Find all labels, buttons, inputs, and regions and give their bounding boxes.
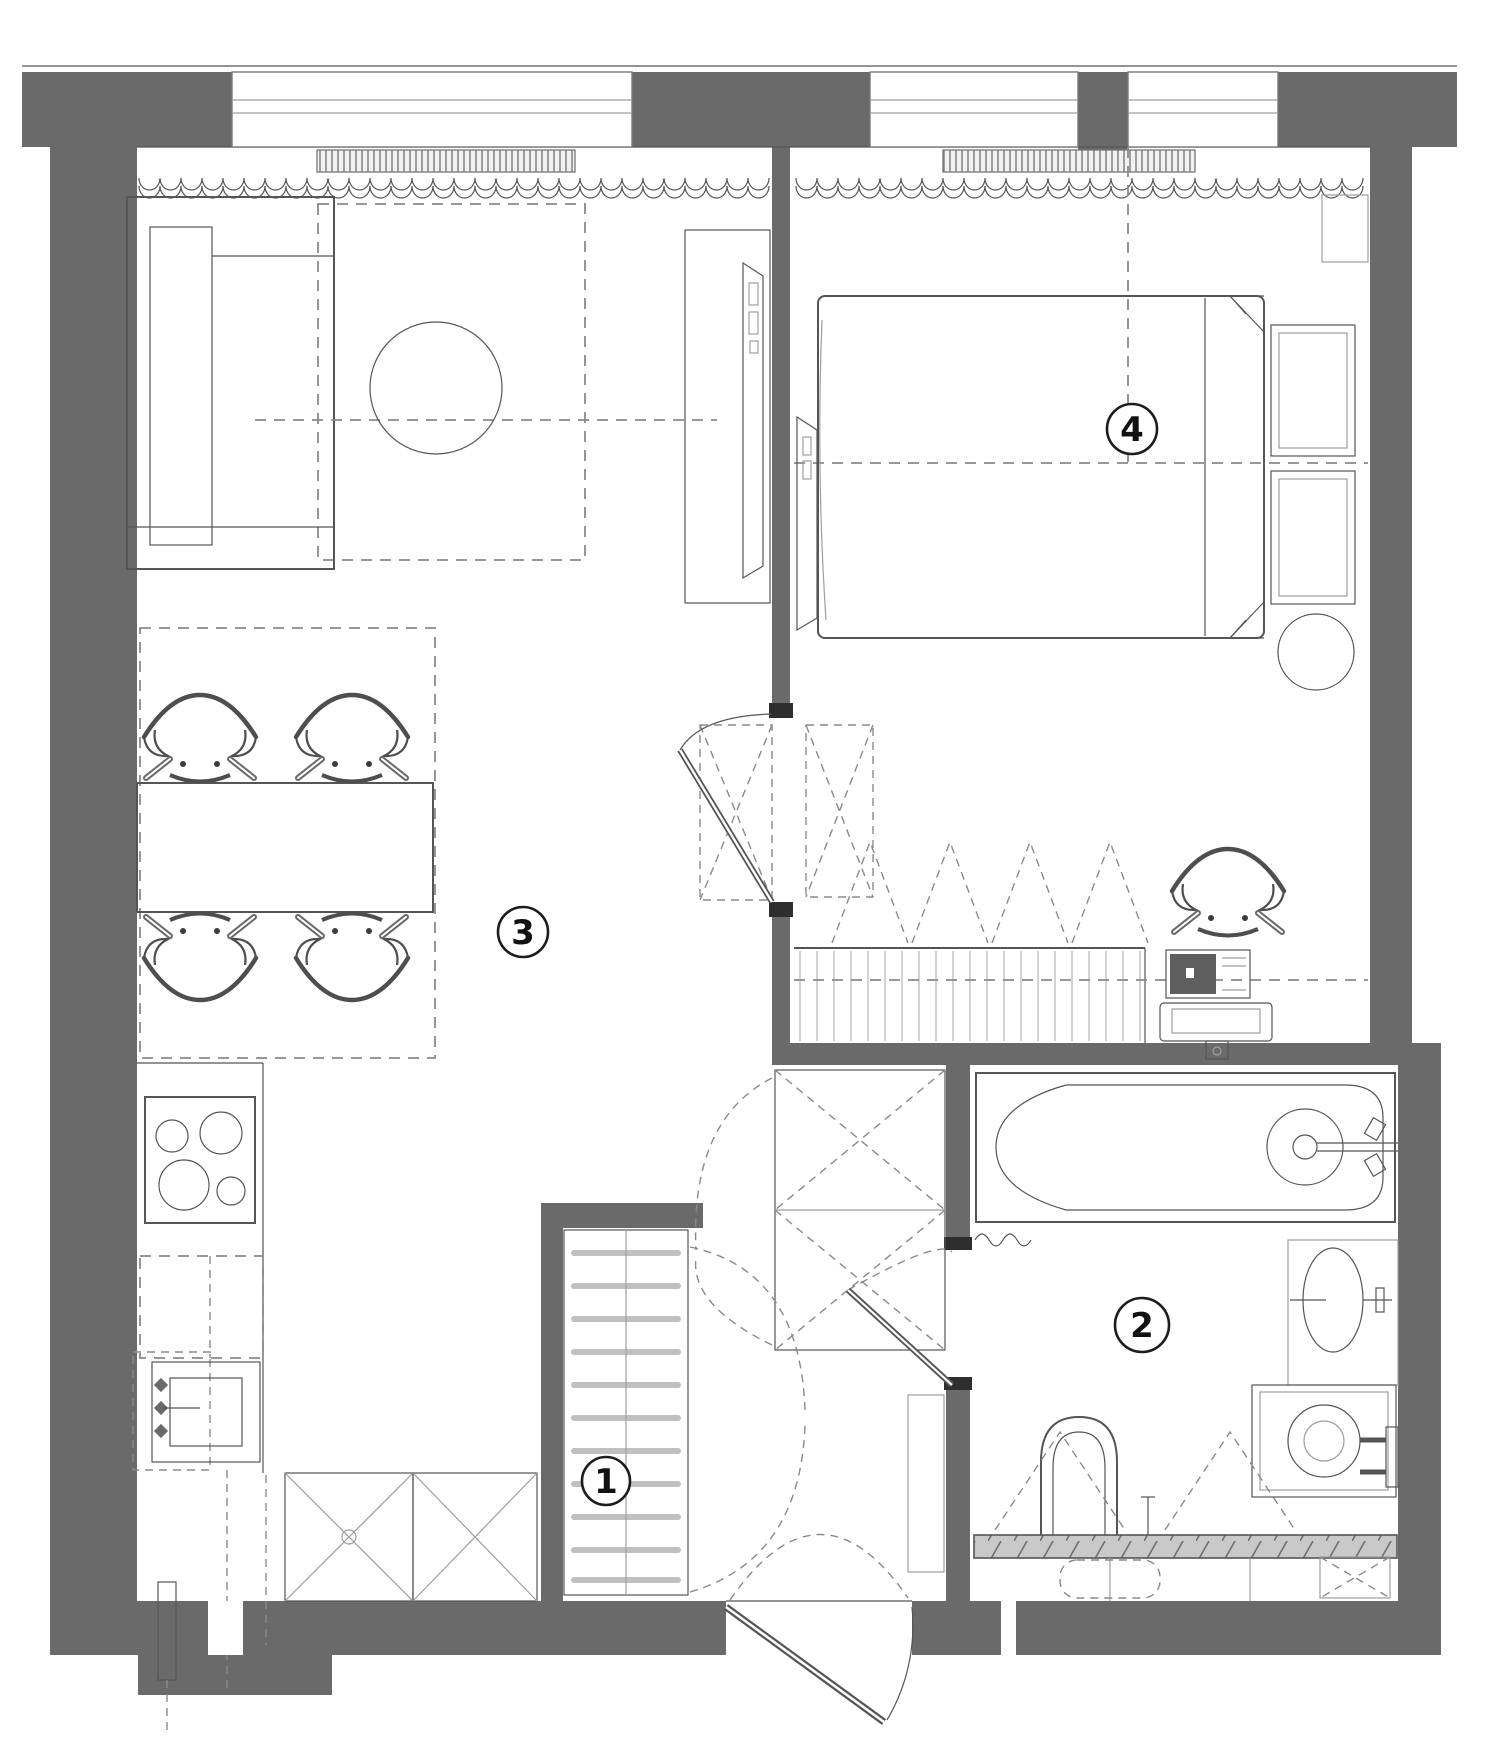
cabinet-door-swing (1165, 1432, 1295, 1530)
tall-cabinet-x (413, 1473, 537, 1601)
bathtub (976, 1073, 1398, 1222)
faucet (154, 1378, 168, 1392)
towel-radiator (1360, 1427, 1398, 1487)
curtain-living (139, 178, 769, 198)
monitor-icon (1166, 950, 1250, 998)
nightstand-shelf (1271, 471, 1355, 604)
tall-cabinet-x (285, 1473, 413, 1601)
wall-bottom-right-b (1016, 1601, 1441, 1655)
wall-bottom-center (243, 1601, 726, 1655)
window-bedroom-left (870, 72, 1078, 147)
wall-divider-lower (772, 917, 790, 1065)
room-number: 2 (1130, 1306, 1154, 1346)
wall-pier-top-right (1278, 72, 1457, 147)
round-side-table (1278, 614, 1354, 690)
floor-plan-drawing: 1234 (0, 0, 1500, 1737)
dining-table (137, 783, 433, 912)
wall-pier-top-small (1078, 72, 1128, 152)
cabinet-door-swing (690, 1247, 805, 1410)
cabinet-door-swing (690, 1425, 805, 1592)
curtain-bedroom (796, 178, 1363, 198)
wall-pier-top-middle (632, 72, 870, 147)
sliding-wardrobe (794, 948, 1145, 1043)
dining-chair (296, 695, 408, 782)
shoe-cabinet (564, 1230, 688, 1595)
entrance-door (726, 1534, 913, 1722)
double-bed (818, 296, 1264, 638)
dining-chair (144, 914, 256, 1001)
dining-chair (144, 695, 256, 782)
tv-bedroom-icon (797, 417, 817, 630)
wall-bottom-block (138, 1655, 332, 1695)
door-jamb (769, 902, 793, 917)
wall-left (50, 147, 137, 1607)
wall-break-symbol (975, 1234, 1031, 1246)
living-room (127, 197, 770, 1058)
wall-right-upper (1370, 147, 1412, 1065)
wall-niche-left (541, 1228, 563, 1601)
rug-outline (318, 204, 585, 560)
wall-right-lower (1398, 1065, 1441, 1655)
door-jamb (944, 1237, 972, 1250)
floor-plan: 1234 (0, 0, 1500, 1737)
desk-chair (1172, 849, 1284, 936)
burner (156, 1120, 188, 1152)
wall-bathroom-left-lower (946, 1390, 970, 1601)
hall-wardrobe-x (696, 1070, 945, 1350)
washbasin (1288, 1240, 1398, 1385)
wall-bedroom-bathroom (772, 1043, 1441, 1065)
bathroom-door (848, 1249, 952, 1385)
room-label-living-kitchen: 3 (498, 907, 548, 957)
window-bedroom-right (1128, 72, 1278, 147)
wall-pier-top-left (22, 72, 232, 147)
room-label-bathroom: 2 (1115, 1298, 1169, 1352)
bedroom-door (680, 714, 873, 902)
room-label-bedroom: 4 (1107, 404, 1157, 454)
base-cabinet-dashed (140, 1256, 263, 1358)
room-number: 3 (511, 913, 535, 953)
door-swing-dashed (730, 1534, 908, 1600)
nightstand-shelf (1271, 325, 1355, 456)
wall-divider-upper (772, 147, 790, 703)
burner (159, 1160, 209, 1210)
burner (217, 1177, 245, 1205)
wall-bottom-left (50, 1601, 208, 1655)
window-living (232, 72, 632, 147)
wall-bathroom-left-upper (946, 1065, 970, 1237)
ac-unit (1322, 195, 1368, 262)
kitchen-sink (133, 1352, 260, 1470)
cooktop (145, 1097, 255, 1223)
burner (200, 1112, 242, 1154)
laundry-cabinet-x (1320, 1557, 1390, 1598)
room-number: 4 (1120, 410, 1144, 450)
bedroom (794, 147, 1368, 1059)
hall-console (908, 1395, 944, 1572)
door-swing-arc (680, 714, 772, 750)
room-number: 1 (594, 1462, 618, 1502)
tv-living-icon (743, 263, 763, 578)
sofa (127, 197, 334, 569)
round-coffee-table (370, 322, 502, 454)
door-jamb (769, 703, 793, 718)
wardrobe-door-swing (696, 1258, 772, 1345)
walls (22, 66, 1457, 1695)
door-swing-arc (887, 1607, 913, 1720)
dining-chair (296, 914, 408, 1001)
hanging-clothes-symbols (832, 842, 1148, 943)
tub-faucet (1267, 1109, 1343, 1185)
radiator-bedroom (943, 150, 1195, 172)
wall-niche-top (541, 1203, 703, 1228)
wall-bottom-right-a (912, 1601, 1001, 1655)
tiled-ledge (974, 1535, 1397, 1601)
tv-cabinet (685, 230, 770, 603)
dining-rug-outline (140, 628, 435, 1058)
room-label-entrance-hall: 1 (582, 1457, 630, 1505)
radiator-living (317, 150, 575, 172)
wardrobe-door-swing (696, 1078, 772, 1250)
